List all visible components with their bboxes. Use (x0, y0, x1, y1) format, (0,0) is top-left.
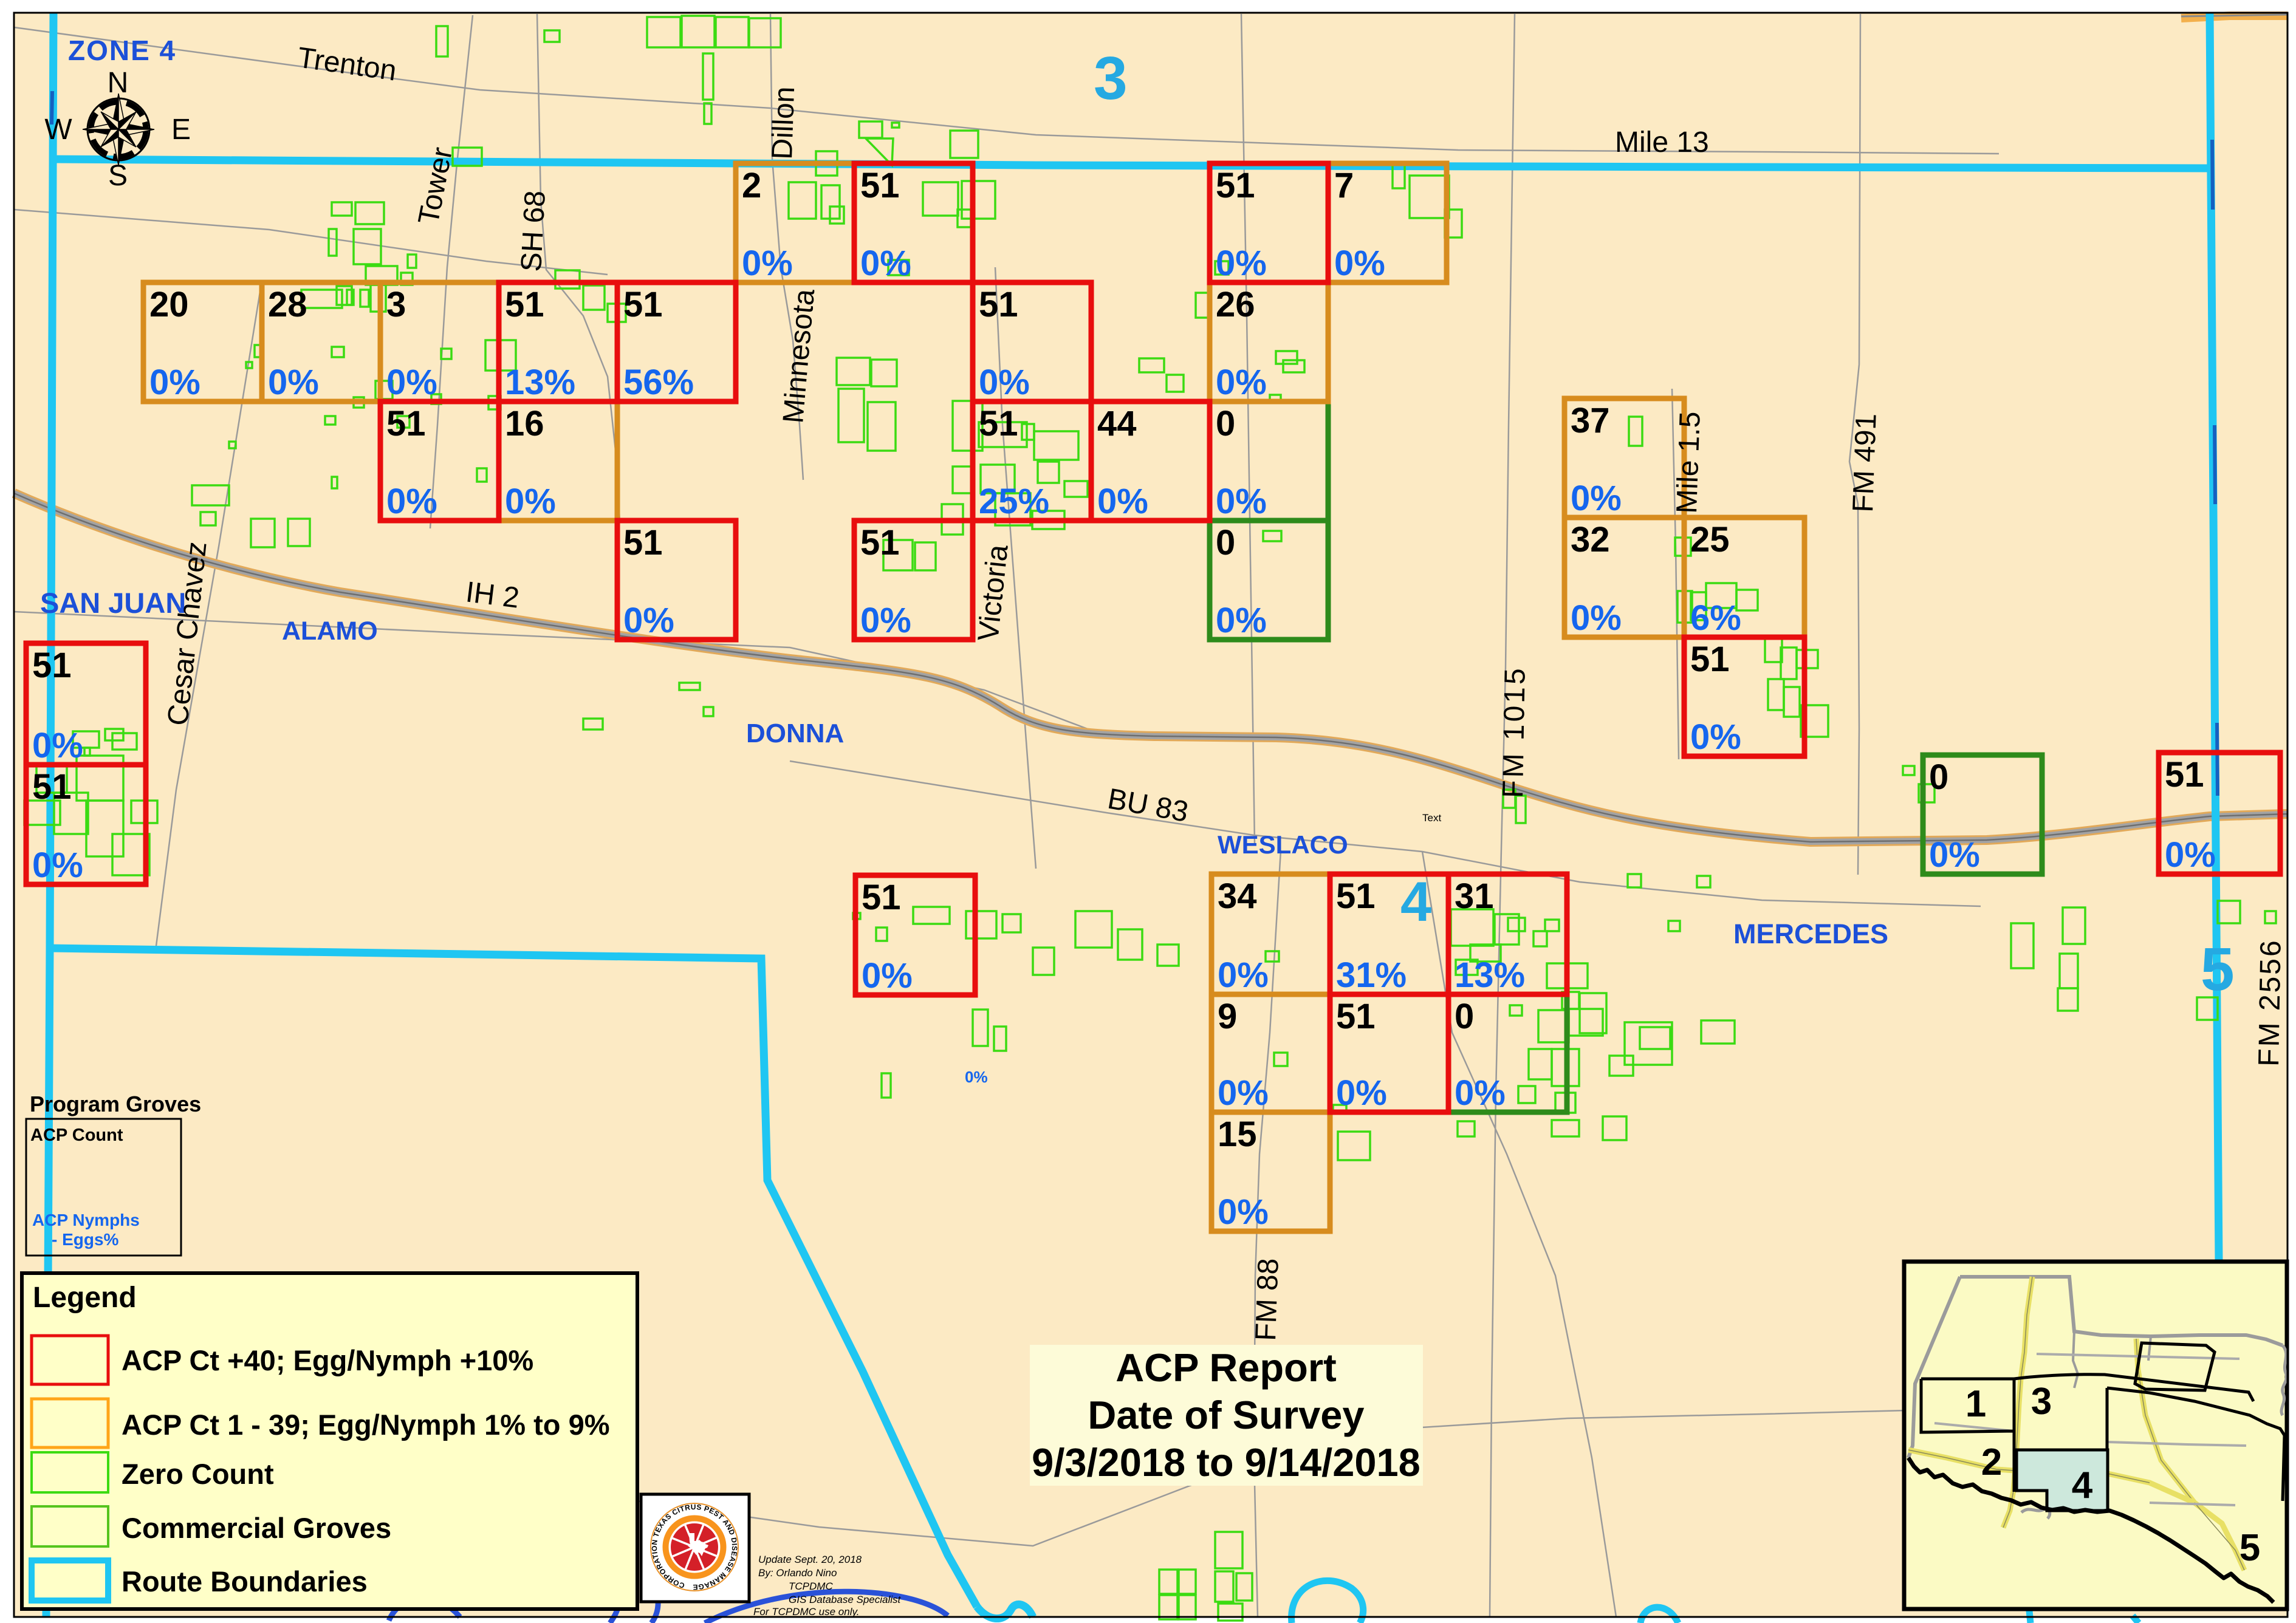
svg-text:16: 16 (505, 404, 544, 443)
svg-text:0%: 0% (505, 482, 556, 521)
svg-text:N: N (108, 67, 129, 99)
svg-text:0%: 0% (1929, 835, 1980, 875)
svg-text:Zero Count: Zero Count (122, 1458, 274, 1490)
svg-text:For TCPDMC use only.: For TCPDMC use only. (753, 1606, 859, 1618)
svg-text:51: 51 (860, 166, 900, 205)
svg-text:0%: 0% (1216, 363, 1267, 402)
svg-text:0%: 0% (1218, 1073, 1269, 1113)
svg-text:15: 15 (1218, 1115, 1257, 1154)
svg-text:SH 68: SH 68 (515, 190, 552, 273)
svg-text:7: 7 (1334, 166, 1354, 205)
svg-text:26: 26 (1216, 285, 1255, 324)
svg-text:ACP Nymphs: ACP Nymphs (32, 1211, 140, 1229)
svg-text:0%: 0% (623, 601, 674, 640)
svg-text:0%: 0% (1216, 482, 1267, 521)
svg-text:20: 20 (149, 285, 189, 324)
svg-text:0%: 0% (1218, 955, 1269, 995)
svg-text:28: 28 (268, 285, 307, 324)
svg-text:0%: 0% (1334, 244, 1385, 283)
svg-text:ALAMO: ALAMO (282, 617, 378, 646)
svg-text:34: 34 (1218, 876, 1257, 916)
svg-text:51: 51 (623, 285, 663, 324)
svg-text:0%: 0% (1216, 601, 1267, 640)
svg-text:0%: 0% (965, 1068, 988, 1086)
svg-text:0%: 0% (386, 363, 437, 402)
svg-text:ACP Report: ACP Report (1115, 1345, 1337, 1390)
svg-text:51: 51 (623, 523, 663, 562)
svg-text:0%: 0% (1690, 717, 1741, 757)
svg-text:51: 51 (1216, 166, 1255, 205)
svg-text:44: 44 (1097, 404, 1137, 443)
svg-text:0%: 0% (32, 846, 83, 885)
svg-text:51: 51 (386, 404, 426, 443)
svg-text:0%: 0% (742, 244, 793, 283)
svg-text:Commercial Groves: Commercial Groves (122, 1512, 391, 1544)
svg-text:0%: 0% (1571, 479, 1622, 518)
svg-text:4: 4 (1400, 871, 1431, 933)
svg-text:FM 491: FM 491 (1847, 413, 1883, 513)
svg-text:51: 51 (979, 285, 1018, 324)
svg-text:MERCEDES: MERCEDES (1733, 918, 1888, 949)
svg-text:3: 3 (386, 285, 406, 324)
svg-text:S: S (108, 160, 128, 192)
svg-text:Program Groves: Program Groves (30, 1092, 201, 1116)
svg-text:51: 51 (32, 767, 72, 807)
svg-text:0%: 0% (1455, 1073, 1506, 1113)
svg-text:0%: 0% (268, 363, 319, 402)
svg-text:4: 4 (2072, 1464, 2093, 1506)
svg-text:0: 0 (1455, 997, 1474, 1036)
svg-text:51: 51 (1336, 997, 1376, 1036)
svg-text:- Eggs%: - Eggs% (52, 1230, 119, 1249)
svg-text:Dillon: Dillon (766, 86, 801, 160)
svg-text:DONNA: DONNA (746, 719, 844, 748)
svg-text:FM 2556: FM 2556 (2253, 938, 2287, 1067)
svg-text:51: 51 (505, 285, 544, 324)
svg-text:FM 88: FM 88 (1250, 1258, 1285, 1342)
svg-text:3: 3 (1094, 44, 1128, 112)
svg-text:56%: 56% (623, 363, 694, 402)
svg-text:3: 3 (2031, 1381, 2052, 1423)
svg-text:ACP Ct +40; Egg/Nymph +10%: ACP Ct +40; Egg/Nymph +10% (122, 1344, 533, 1376)
svg-text:0%: 0% (1097, 482, 1148, 521)
svg-text:Route Boundaries: Route Boundaries (122, 1565, 368, 1597)
svg-text:FM 1015: FM 1015 (1497, 666, 1532, 798)
svg-text:0%: 0% (1218, 1192, 1269, 1232)
svg-text:9: 9 (1218, 997, 1237, 1036)
svg-text:0%: 0% (979, 363, 1030, 402)
svg-text:0%: 0% (2165, 835, 2216, 875)
svg-text:31%: 31% (1336, 955, 1407, 995)
svg-text:25: 25 (1690, 520, 1730, 559)
svg-text:51: 51 (1336, 876, 1376, 916)
svg-text:Text: Text (1422, 812, 1441, 824)
svg-text:51: 51 (2165, 755, 2204, 794)
svg-text:25%: 25% (979, 482, 1049, 521)
svg-text:Mile 13: Mile 13 (1615, 126, 1709, 159)
svg-text:0: 0 (1216, 404, 1235, 443)
svg-text:32: 32 (1571, 520, 1610, 559)
svg-text:1: 1 (1965, 1383, 1986, 1425)
svg-text:2: 2 (742, 166, 761, 205)
svg-text:0%: 0% (860, 601, 911, 640)
svg-text:0%: 0% (149, 363, 200, 402)
svg-text:51: 51 (862, 878, 901, 917)
svg-text:Mile 1.5: Mile 1.5 (1671, 411, 1707, 514)
svg-text:2: 2 (1981, 1441, 2002, 1483)
svg-text:IH 2: IH 2 (464, 576, 521, 614)
svg-text:0: 0 (1929, 757, 1948, 797)
svg-text:E: E (171, 114, 191, 146)
svg-text:13%: 13% (1455, 955, 1525, 995)
svg-text:5: 5 (2201, 935, 2235, 1003)
svg-text:By: Orlando Nino: By: Orlando Nino (758, 1567, 837, 1579)
svg-text:W: W (44, 114, 72, 146)
svg-text:ACP Count: ACP Count (30, 1126, 123, 1145)
svg-text:5: 5 (2239, 1527, 2260, 1569)
svg-text:13%: 13% (505, 363, 575, 402)
svg-text:GIS Database Specialist: GIS Database Specialist (789, 1594, 902, 1605)
svg-text:51: 51 (979, 404, 1018, 443)
svg-text:0%: 0% (862, 956, 913, 996)
svg-text:Legend: Legend (33, 1282, 137, 1314)
svg-text:51: 51 (860, 523, 900, 562)
svg-text:WESLACO: WESLACO (1218, 830, 1348, 859)
svg-text:9/3/2018 to 9/14/2018: 9/3/2018 to 9/14/2018 (1032, 1440, 1420, 1485)
svg-text:0%: 0% (860, 244, 911, 283)
svg-text:37: 37 (1571, 401, 1610, 440)
svg-text:0: 0 (1216, 523, 1235, 562)
svg-text:0%: 0% (1336, 1073, 1387, 1113)
svg-text:0%: 0% (1216, 244, 1267, 283)
svg-text:51: 51 (1690, 640, 1730, 679)
svg-text:6%: 6% (1690, 598, 1741, 638)
svg-text:31: 31 (1455, 876, 1494, 916)
svg-text:0%: 0% (32, 726, 83, 765)
svg-text:ZONE 4: ZONE 4 (68, 35, 176, 66)
svg-text:TCPDMC: TCPDMC (789, 1580, 833, 1592)
svg-text:0%: 0% (386, 482, 437, 521)
svg-text:Date of Survey: Date of Survey (1088, 1393, 1364, 1437)
svg-text:SAN JUAN: SAN JUAN (40, 587, 186, 619)
svg-text:0%: 0% (1571, 598, 1622, 638)
svg-text:51: 51 (32, 646, 72, 685)
svg-text:ACP Ct 1 - 39; Egg/Nymph 1% to: ACP Ct 1 - 39; Egg/Nymph 1% to 9% (122, 1409, 610, 1441)
svg-text:Update Sept. 20, 2018: Update Sept. 20, 2018 (758, 1554, 862, 1565)
